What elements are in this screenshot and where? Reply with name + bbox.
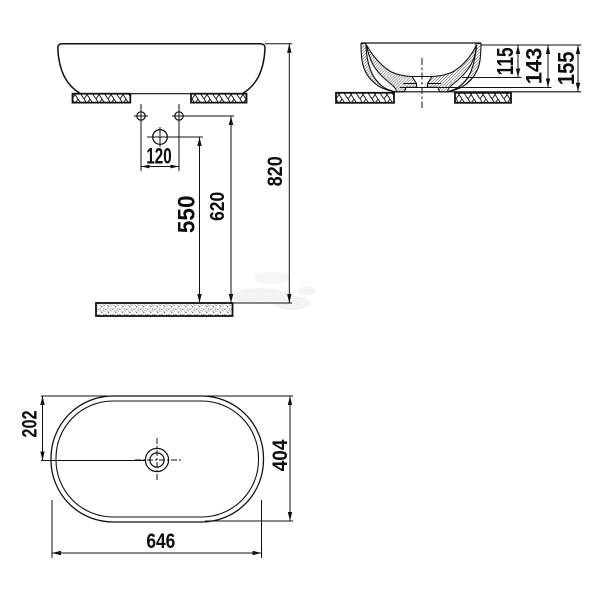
svg-text:646: 646 — [146, 529, 175, 553]
svg-text:404: 404 — [269, 439, 292, 471]
svg-text:120: 120 — [146, 145, 171, 170]
svg-text:820: 820 — [264, 156, 288, 186]
svg-text:550: 550 — [173, 195, 200, 233]
svg-text:115: 115 — [493, 47, 519, 75]
svg-text:155: 155 — [553, 51, 580, 85]
svg-text:202: 202 — [17, 410, 40, 437]
svg-text:620: 620 — [206, 192, 228, 221]
svg-text:143: 143 — [521, 48, 546, 85]
